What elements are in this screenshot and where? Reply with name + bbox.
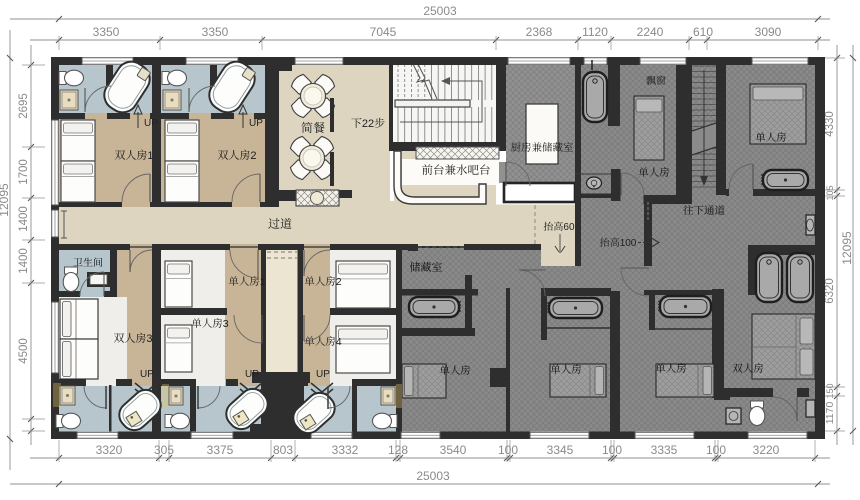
svg-text:UP: UP [316, 369, 330, 380]
svg-text:2368: 2368 [526, 25, 553, 39]
svg-text:60: 60 [563, 222, 575, 233]
svg-text:12095: 12095 [0, 183, 11, 217]
svg-text:4: 4 [336, 336, 342, 348]
svg-text:22: 22 [362, 118, 374, 130]
svg-text:610: 610 [693, 25, 713, 39]
svg-text:25003: 25003 [416, 469, 450, 483]
svg-text:3: 3 [146, 333, 152, 345]
svg-text:1120: 1120 [582, 25, 608, 39]
svg-text:100: 100 [498, 443, 518, 457]
svg-text:3375: 3375 [207, 443, 234, 457]
svg-text:1: 1 [260, 276, 266, 288]
svg-text:105: 105 [825, 185, 835, 200]
svg-text:3335: 3335 [651, 443, 678, 457]
svg-text:305: 305 [154, 443, 174, 457]
svg-text:1400: 1400 [18, 206, 30, 232]
svg-text:7045: 7045 [370, 25, 397, 39]
svg-text:1170: 1170 [824, 402, 836, 425]
svg-text:UP: UP [144, 118, 158, 129]
svg-text:3345: 3345 [547, 443, 574, 457]
svg-text:4500: 4500 [18, 338, 30, 364]
svg-text:2695: 2695 [18, 93, 30, 119]
svg-text:100: 100 [706, 443, 726, 457]
svg-text:1: 1 [147, 150, 153, 162]
svg-text:100: 100 [620, 238, 637, 249]
svg-text:4330: 4330 [824, 111, 836, 137]
svg-text:150: 150 [825, 383, 835, 398]
svg-text:2: 2 [250, 150, 256, 162]
svg-text:128: 128 [388, 443, 408, 457]
svg-text:1400: 1400 [18, 248, 30, 274]
svg-text:6320: 6320 [824, 278, 836, 304]
svg-text:2: 2 [336, 276, 342, 288]
svg-text:100: 100 [602, 443, 622, 457]
svg-text:803: 803 [273, 443, 293, 457]
svg-text:3350: 3350 [93, 25, 120, 39]
svg-text:UP: UP [140, 369, 154, 380]
svg-text:12095: 12095 [840, 231, 854, 265]
svg-text:3220: 3220 [753, 443, 780, 457]
svg-text:2240: 2240 [637, 25, 664, 39]
svg-text:3350: 3350 [202, 25, 229, 39]
svg-text:1700: 1700 [18, 159, 30, 185]
svg-text:UP: UP [245, 369, 259, 380]
svg-text:25003: 25003 [423, 4, 457, 18]
svg-text:3332: 3332 [332, 443, 359, 457]
svg-text:3: 3 [223, 318, 229, 330]
svg-text:3320: 3320 [96, 443, 123, 457]
svg-text:3540: 3540 [440, 443, 467, 457]
svg-text:UP: UP [249, 118, 263, 129]
svg-text:3090: 3090 [755, 25, 782, 39]
